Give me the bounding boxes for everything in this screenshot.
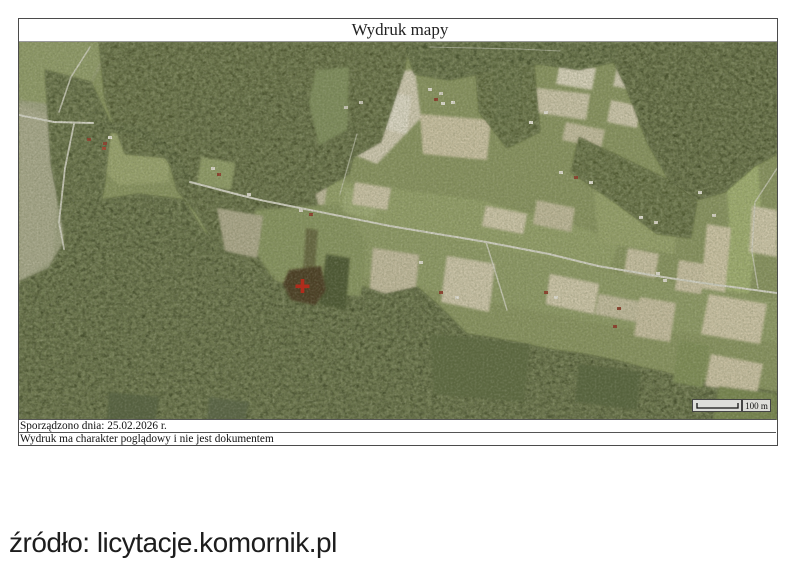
- svg-text:100 m: 100 m: [745, 401, 768, 411]
